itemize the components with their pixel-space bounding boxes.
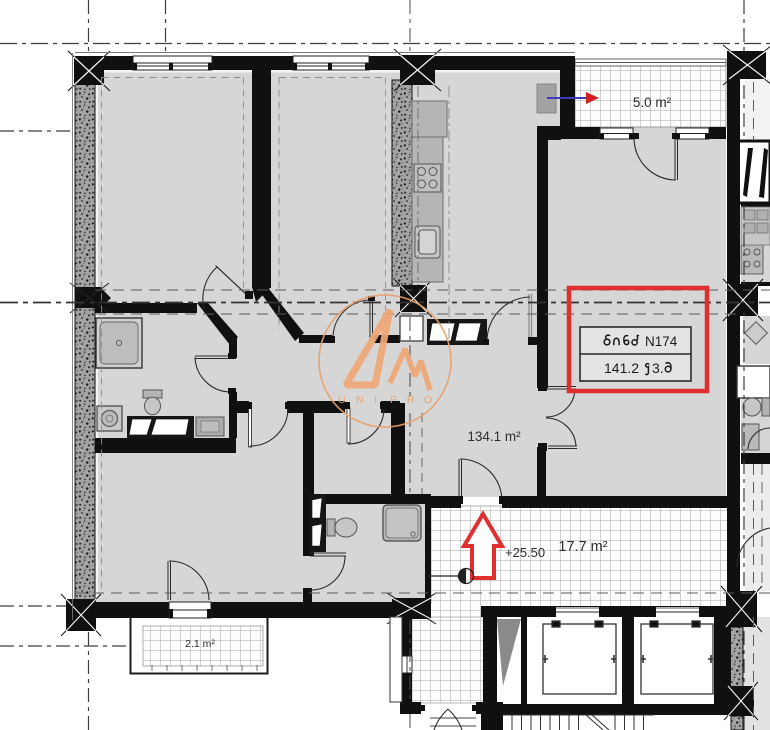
svg-text:3.: 3. — [652, 360, 664, 376]
svg-text:I: I — [374, 394, 377, 406]
svg-text:N: N — [356, 394, 364, 406]
svg-text:+25.50: +25.50 — [505, 545, 545, 560]
svg-text:N174: N174 — [645, 334, 678, 349]
svg-text:5.0 m²: 5.0 m² — [633, 95, 672, 110]
svg-text:R: R — [407, 394, 415, 406]
svg-text:U: U — [338, 394, 346, 406]
svg-text:134.1 m²: 134.1 m² — [467, 429, 521, 444]
svg-text:17.7 m²: 17.7 m² — [558, 539, 607, 555]
svg-text:141.2: 141.2 — [604, 360, 639, 376]
svg-text:2.1 m²: 2.1 m² — [185, 638, 215, 650]
svg-text:P: P — [390, 394, 397, 406]
svg-text:O: O — [424, 394, 432, 406]
